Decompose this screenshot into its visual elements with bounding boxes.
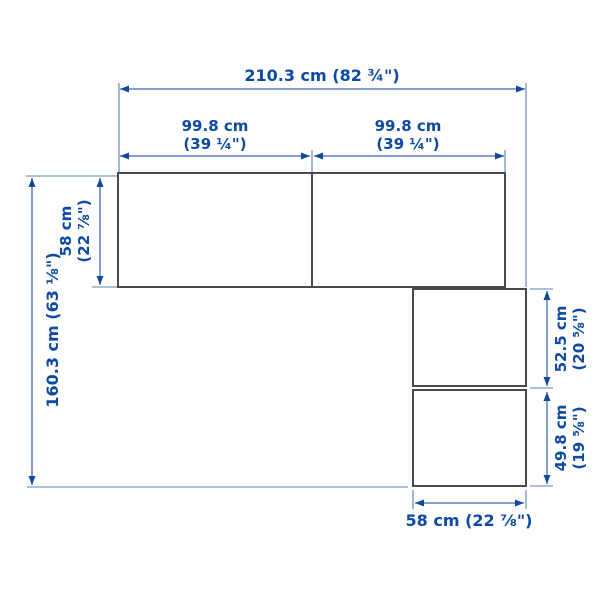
dim-right-lower-label-inches: (19 ⅝")	[570, 405, 588, 472]
dim-right-upper-label: 52.5 cm (20 ⅝")	[552, 306, 588, 373]
wardrobe-outline	[118, 173, 526, 486]
dim-right-upper-label-cm: 52.5 cm	[552, 306, 570, 373]
dim-total-width-label: 210.3 cm (82 ¾")	[244, 67, 399, 85]
dim-bottom-depth-label: 58 cm (22 ⅞")	[406, 512, 533, 530]
dim-left-section-label: 99.8 cm (39 ¼")	[182, 117, 249, 153]
dim-left-section-label-inches: (39 ¼")	[182, 135, 249, 153]
dim-right-section-label-cm: 99.8 cm	[375, 117, 442, 135]
dim-left-section-label-cm: 99.8 cm	[182, 117, 249, 135]
dim-top-depth-label: 58 cm (22 ⅞")	[57, 199, 93, 262]
dim-right-lower-label: 49.8 cm (19 ⅝")	[552, 405, 588, 472]
corner-frame-lower	[413, 390, 526, 486]
dim-top-depth-label-inches: (22 ⅞")	[75, 199, 93, 262]
wardrobe-frame-top-right	[312, 173, 505, 287]
wardrobe-frame-top-left	[118, 173, 312, 287]
dim-right-lower-label-cm: 49.8 cm	[552, 405, 570, 472]
dim-right-upper-label-inches: (20 ⅝")	[570, 306, 588, 373]
dim-right-section-label: 99.8 cm (39 ¼")	[375, 117, 442, 153]
corner-frame-upper	[413, 289, 526, 386]
dim-total-depth-label: 160.3 cm (63 ⅛")	[44, 252, 62, 407]
diagram-linework	[0, 0, 600, 600]
dim-right-section-label-inches: (39 ¼")	[375, 135, 442, 153]
dimension-diagram: 210.3 cm (82 ¾") 99.8 cm (39 ¼") 99.8 cm…	[0, 0, 600, 600]
